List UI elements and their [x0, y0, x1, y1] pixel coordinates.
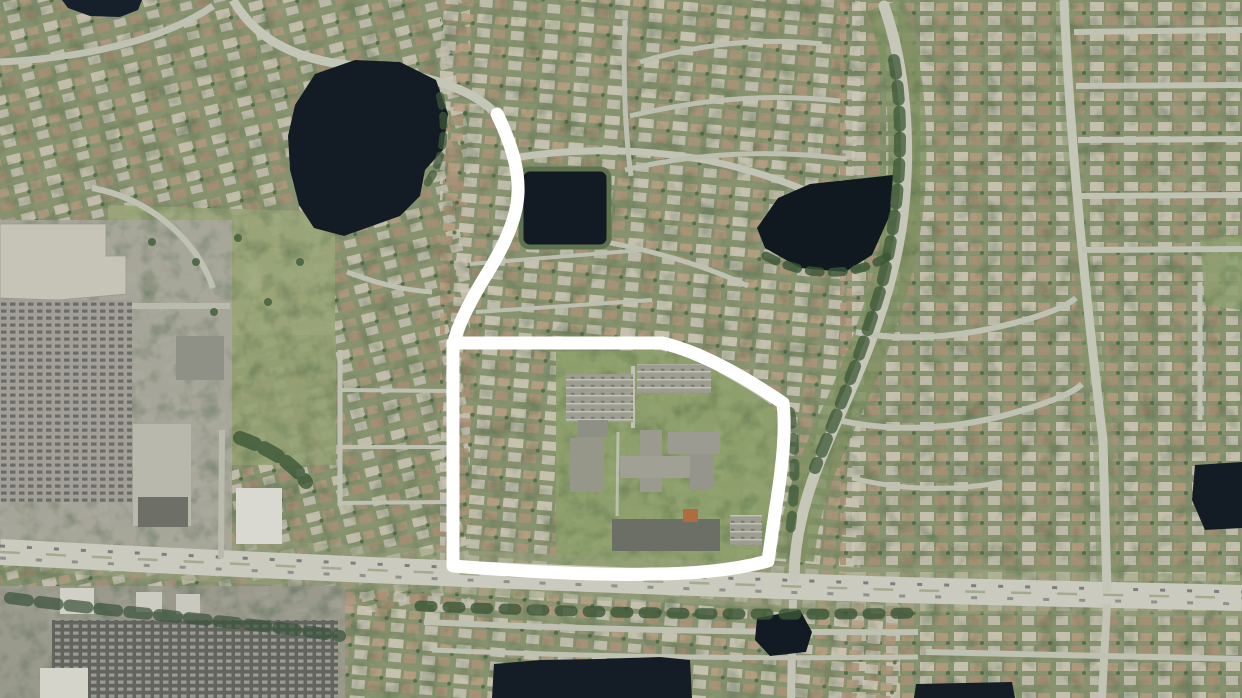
corner-building	[40, 668, 88, 698]
grid-street-3	[1078, 139, 1242, 140]
campus-parking-southeast	[730, 515, 762, 545]
field-tree-6	[210, 308, 218, 316]
school-building-west2	[578, 420, 608, 437]
school-orange-roof	[683, 509, 698, 522]
white-roof-building	[236, 488, 282, 544]
school-building-center2	[620, 456, 690, 478]
school-building-east	[668, 432, 720, 454]
school-building-south	[612, 519, 720, 551]
mall-parking-lot	[0, 300, 132, 502]
satellite-canvas	[0, 0, 1242, 698]
grid-street-2	[1076, 85, 1242, 86]
aerial-map-image	[0, 0, 1242, 698]
field-tree-2	[192, 258, 200, 266]
grid-street-1	[1074, 30, 1242, 32]
field-tree-3	[234, 234, 242, 242]
school-building-west	[570, 438, 604, 492]
lake-bottom-right	[914, 682, 1015, 698]
campus-walkway	[617, 432, 618, 516]
field-tree-1	[148, 238, 156, 246]
street-ladder-rung1	[342, 390, 450, 391]
street-commercial-vertical	[221, 430, 222, 558]
field-tree-4	[264, 298, 272, 306]
grid-street-4	[1080, 195, 1242, 196]
school-building-east2	[690, 454, 714, 490]
campus-parking-northwest	[566, 374, 633, 422]
outparcel-shop-c	[176, 594, 200, 614]
mall-building-mid	[176, 336, 224, 380]
road-vertical-right-south	[1102, 604, 1107, 698]
grid-street-5	[1082, 249, 1242, 250]
map-feature-layer	[0, 0, 1242, 698]
street-ladder-rung3	[342, 502, 450, 503]
warehouse-dark-section	[138, 497, 188, 527]
campus-parking-north	[637, 364, 711, 393]
field-tree-5	[296, 258, 304, 266]
lake-bottom-long	[492, 657, 692, 698]
pond-rectangular	[521, 169, 609, 247]
